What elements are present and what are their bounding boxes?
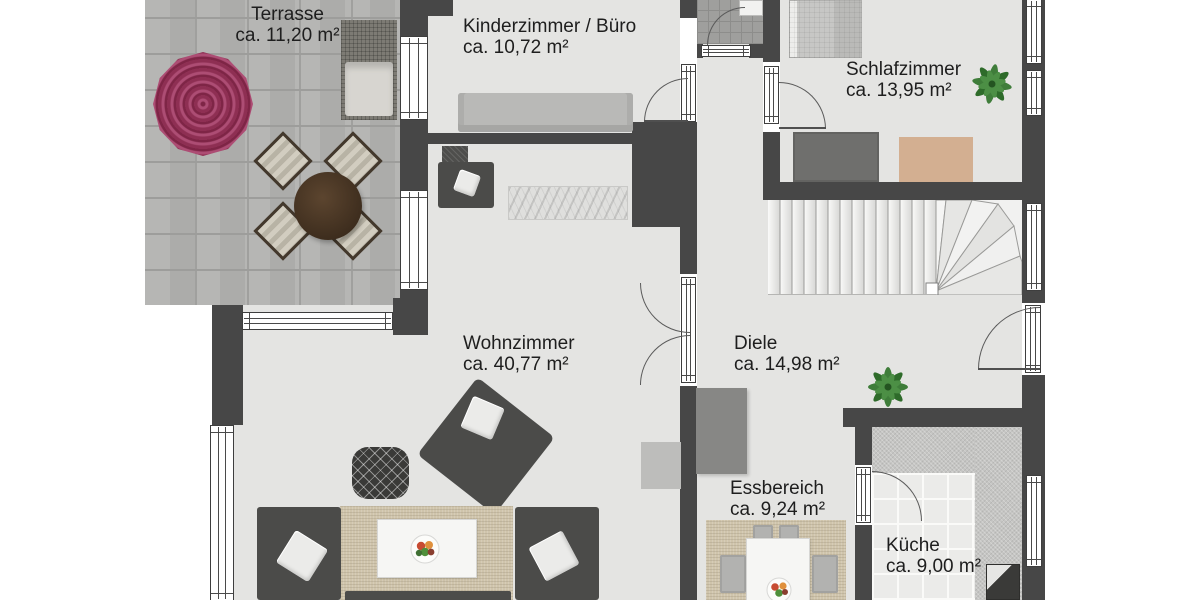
dining-chair: [720, 555, 746, 593]
window-terrace-patio: [242, 312, 393, 330]
lowboard: [641, 442, 681, 489]
door-leaf-kinderzimmer: [644, 120, 688, 122]
wall: [680, 386, 697, 600]
door-leaf-entrance: [978, 368, 1040, 370]
door-frame-kitchen: [856, 467, 871, 523]
window-bedroom-1: [1026, 0, 1042, 64]
window-kitchen: [1026, 475, 1042, 567]
terrace-table: [294, 172, 362, 240]
room-label-diele: Diele ca. 14,98 m²: [734, 333, 840, 375]
fruit-bowl-icon: [764, 576, 794, 600]
wall: [763, 130, 780, 190]
wall: [393, 298, 428, 335]
room-name: Wohnzimmer: [463, 333, 575, 354]
room-area: ca. 14,98 m²: [734, 354, 840, 375]
plant-icon: [970, 58, 1015, 110]
wall: [680, 122, 697, 274]
room-area: ca. 9,00 m²: [886, 556, 981, 577]
wall: [763, 182, 1045, 200]
kinderzimmer-sofa: [458, 93, 633, 132]
room-label-essbereich: Essbereich ca. 9,24 m²: [730, 478, 825, 520]
fruit-bowl-icon: [408, 532, 442, 566]
room-label-schlafzimmer: Schlafzimmer ca. 13,95 m²: [846, 59, 961, 101]
kitchen-appliance: [986, 564, 1020, 600]
dining-chair: [812, 555, 838, 593]
room-name: Küche: [886, 535, 981, 556]
stairs: [768, 200, 1022, 295]
room-name: Kinderzimmer / Büro: [463, 16, 636, 37]
room-area: ca. 40,77 m²: [463, 354, 575, 375]
bedroom-dresser: [793, 132, 879, 182]
armchair-left: [257, 507, 341, 600]
hall-sideboard: [696, 388, 747, 474]
room-label-wohnzimmer: Wohnzimmer ca. 40,77 m²: [463, 333, 575, 375]
window-kinderzimmer: [400, 36, 428, 120]
window-bedroom-2: [1026, 70, 1042, 116]
wall: [212, 305, 243, 425]
door-frame-bathroom: [701, 45, 751, 57]
room-label-kueche: Küche ca. 9,00 m²: [886, 535, 981, 577]
sideboard-marble: [508, 186, 628, 220]
lounge-cushion: [345, 62, 393, 116]
bed: [789, 0, 862, 58]
window-stairs: [1026, 203, 1042, 291]
room-label-kinderzimmer: Kinderzimmer / Büro ca. 10,72 m²: [463, 16, 636, 58]
room-name: Terrasse: [205, 4, 370, 25]
door-frame-schlafzimmer: [764, 66, 779, 124]
room-area: ca. 11,20 m²: [205, 25, 370, 46]
wall: [749, 44, 763, 58]
room-label-terrasse: Terrasse ca. 11,20 m²: [205, 4, 370, 46]
sofa-bottom-edge: [345, 591, 511, 600]
room-area: ca. 13,95 m²: [846, 80, 961, 101]
room-area: ca. 9,24 m²: [730, 499, 825, 520]
bedroom-rug: [899, 137, 973, 182]
room-name: Schlafzimmer: [846, 59, 961, 80]
armchair: [438, 162, 494, 208]
wall: [855, 427, 872, 467]
window-livingroom-left: [210, 425, 234, 600]
wall: [855, 523, 872, 600]
room-name: Essbereich: [730, 478, 825, 499]
armchair-right: [515, 507, 599, 600]
plant-icon: [865, 363, 911, 411]
floor-plan: Terrasse ca. 11,20 m² Kinderzimmer / Bür…: [0, 0, 1200, 600]
door-leaf-schlafzimmer: [779, 127, 826, 129]
window-livingroom-upper: [400, 190, 428, 290]
wall: [423, 0, 453, 16]
room-name: Diele: [734, 333, 840, 354]
room-area: ca. 10,72 m²: [463, 37, 636, 58]
pouf: [352, 447, 409, 499]
wall: [763, 0, 780, 64]
wall: [632, 122, 680, 227]
